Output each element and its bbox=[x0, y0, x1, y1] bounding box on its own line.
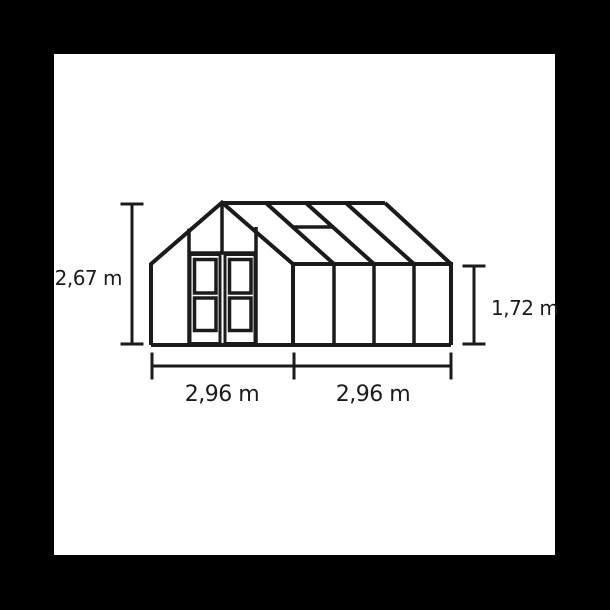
dimension-label-right-height: 1,72 m bbox=[491, 296, 558, 320]
product-image: 2,67 m 1,72 m 2,96 m 2,96 m bbox=[0, 0, 610, 610]
image-canvas bbox=[54, 54, 555, 555]
dimension-label-bottom-left-width: 2,96 m bbox=[185, 382, 259, 407]
greenhouse-dimension-diagram: 2,67 m 1,72 m 2,96 m 2,96 m bbox=[0, 0, 610, 610]
dimension-label-bottom-right-width: 2,96 m bbox=[336, 382, 410, 407]
dimension-label-left-height: 2,67 m bbox=[55, 266, 122, 290]
